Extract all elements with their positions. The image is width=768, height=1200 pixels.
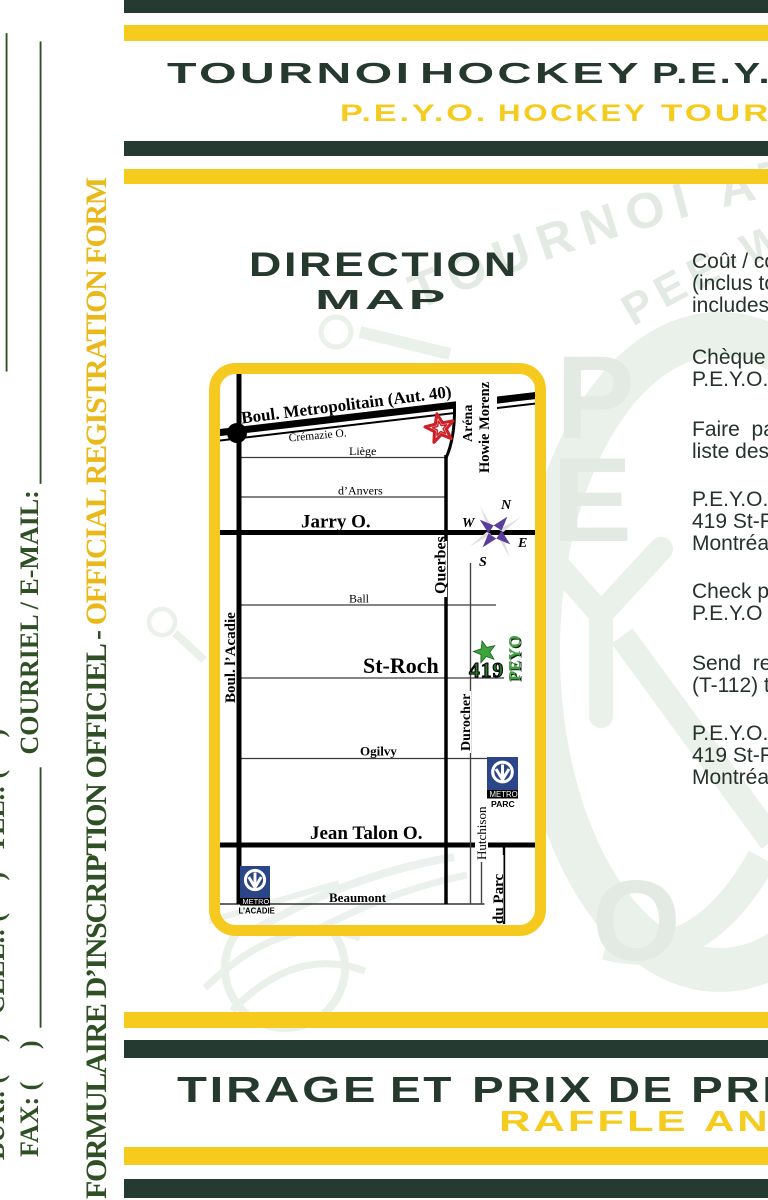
svg-text:Ball: Ball bbox=[349, 592, 370, 606]
svg-text:St-Roch: St-Roch bbox=[363, 653, 439, 678]
svg-text:E: E bbox=[517, 536, 527, 551]
svg-text:PEYO: PEYO bbox=[505, 635, 524, 681]
svg-text:PARC: PARC bbox=[491, 799, 515, 809]
svg-text:L’ACADIE: L’ACADIE bbox=[239, 907, 275, 916]
svg-text:Jarry O.: Jarry O. bbox=[301, 512, 371, 533]
svg-text:Aréna: Aréna bbox=[461, 405, 476, 442]
svg-text:Beaumont: Beaumont bbox=[329, 890, 387, 905]
svg-text:METRO: METRO bbox=[243, 897, 270, 906]
svg-text:Durocher: Durocher bbox=[459, 694, 474, 751]
svg-text:Boul. l’Acadie: Boul. l’Acadie bbox=[223, 612, 239, 703]
svg-text:419: 419 bbox=[469, 658, 504, 682]
svg-text:Ogilvy: Ogilvy bbox=[360, 744, 397, 759]
svg-text:S: S bbox=[479, 555, 487, 570]
svg-text:Querbes: Querbes bbox=[433, 536, 450, 594]
svg-text:O: O bbox=[592, 858, 681, 985]
svg-text:Hutchison: Hutchison bbox=[474, 806, 489, 860]
svg-text:N: N bbox=[500, 498, 512, 513]
svg-text:METRO: METRO bbox=[490, 790, 518, 799]
svg-text:Jean Talon O.: Jean Talon O. bbox=[310, 823, 422, 844]
svg-text:d’Anvers: d’Anvers bbox=[338, 484, 383, 498]
svg-text:Liège: Liège bbox=[349, 444, 376, 458]
svg-text:W: W bbox=[462, 516, 476, 531]
svg-text:du Parc: du Parc bbox=[491, 874, 507, 924]
svg-text:E: E bbox=[552, 433, 632, 567]
svg-text:Howie Morenz: Howie Morenz bbox=[477, 381, 493, 473]
